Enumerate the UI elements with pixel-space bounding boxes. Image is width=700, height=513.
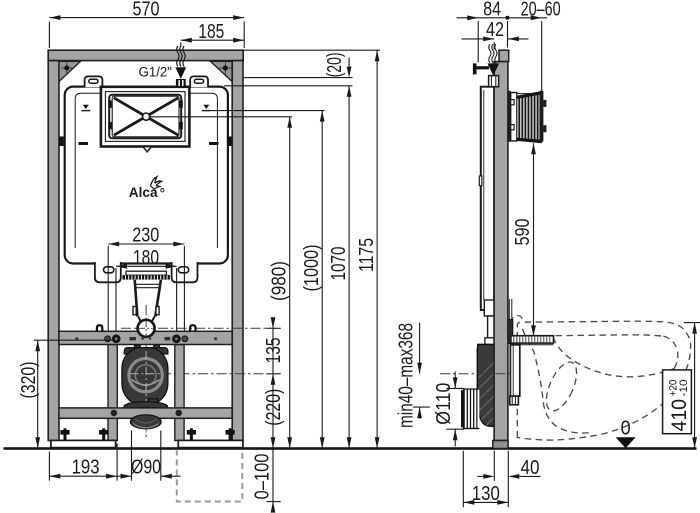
svg-text:1070: 1070 (328, 247, 350, 281)
svg-text:Ø110: Ø110 (433, 383, 455, 425)
svg-text:-10: -10 (678, 380, 690, 397)
svg-text:410: 410 (667, 399, 691, 432)
svg-text:20–60: 20–60 (521, 0, 561, 21)
svg-text:42: 42 (486, 19, 504, 41)
svg-text:Alca: Alca (129, 184, 158, 200)
svg-text:0–100: 0–100 (251, 454, 273, 500)
svg-text:230: 230 (132, 225, 159, 247)
svg-text:(980): (980) (269, 261, 291, 301)
svg-text:(220): (220) (263, 389, 285, 426)
svg-text:570: 570 (133, 0, 160, 21)
svg-text:(320): (320) (18, 362, 40, 399)
svg-text:min40–max368: min40–max368 (396, 323, 418, 428)
svg-text:135: 135 (263, 337, 285, 363)
svg-text:Ø90: Ø90 (131, 457, 161, 479)
svg-text:84: 84 (483, 0, 501, 21)
svg-text:0: 0 (621, 417, 631, 439)
svg-text:(1000): (1000) (301, 245, 323, 292)
svg-text:185: 185 (198, 21, 224, 43)
svg-text:590: 590 (512, 219, 534, 246)
svg-text:180: 180 (133, 247, 159, 269)
svg-text:1175: 1175 (356, 238, 378, 272)
svg-text:(20): (20) (324, 52, 346, 77)
svg-text:130: 130 (472, 483, 500, 505)
svg-text:40: 40 (521, 457, 540, 479)
svg-text:193: 193 (72, 457, 100, 479)
svg-text:G1/2": G1/2" (139, 65, 173, 80)
